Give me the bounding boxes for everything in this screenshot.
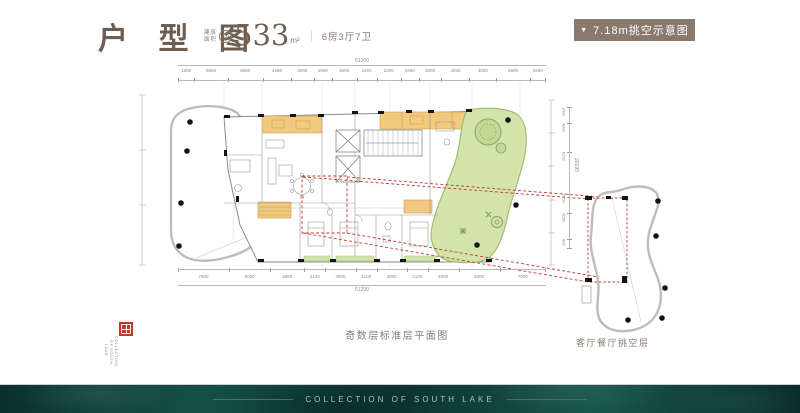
elevator-core [336, 130, 360, 182]
main-floor-plan [130, 55, 700, 352]
red-seal-icon [119, 322, 133, 336]
footer-rule-left [213, 399, 293, 400]
area-value: 533 [234, 22, 289, 48]
dim-total-side: 20190 [573, 158, 579, 172]
room-spec: 6房3厅7卫 [322, 29, 372, 43]
dim-row-top: 1500550060004250300019003500240033001900… [178, 68, 546, 81]
separator: ｜ [306, 28, 317, 44]
dim-row-bottom: 7900600046502130390021003900210040006000… [178, 269, 546, 282]
banner-label: 7.18m挑空示意图 [593, 22, 689, 38]
area-unit: m² [290, 36, 299, 45]
seal-text-col-2: OF SOUTH [109, 340, 114, 365]
approx-circle-icon: 约 [219, 30, 232, 43]
dim-total-top: 51200 [178, 58, 546, 66]
footer-rule-right [507, 399, 587, 400]
stairs [364, 130, 422, 156]
side-plan-caption: 客厅餐厅挑空层 [576, 336, 650, 349]
footer-text: COLLECTION OF SOUTH LAKE [305, 395, 494, 404]
side-plan [582, 187, 668, 332]
floor-plan-page: 户 型 图 建筑 面积 约 533 m² ｜ 6房3厅7卫 ▼ 7.18m挑空示… [0, 0, 800, 413]
void-height-banner-button[interactable]: ▼ 7.18m挑空示意图 [574, 19, 695, 41]
chevron-down-icon: ▼ [580, 27, 588, 34]
dim-total-bottom: 51200 [178, 285, 546, 293]
dim-row-side: 16004800815023504050800 [558, 107, 570, 249]
main-plan-caption: 奇数层标准层平面图 [322, 327, 472, 342]
seal-text-col-1: COLLECTION [114, 336, 119, 367]
area-prefix: 建筑 面积 [204, 30, 217, 43]
balcony-green-strips [304, 256, 436, 261]
seal-text-col-3: LAKE [104, 344, 109, 356]
area-spec-group: 建筑 面积 约 533 m² ｜ 6房3厅7卫 [204, 22, 372, 48]
footer-band: COLLECTION OF SOUTH LAKE [0, 384, 800, 413]
